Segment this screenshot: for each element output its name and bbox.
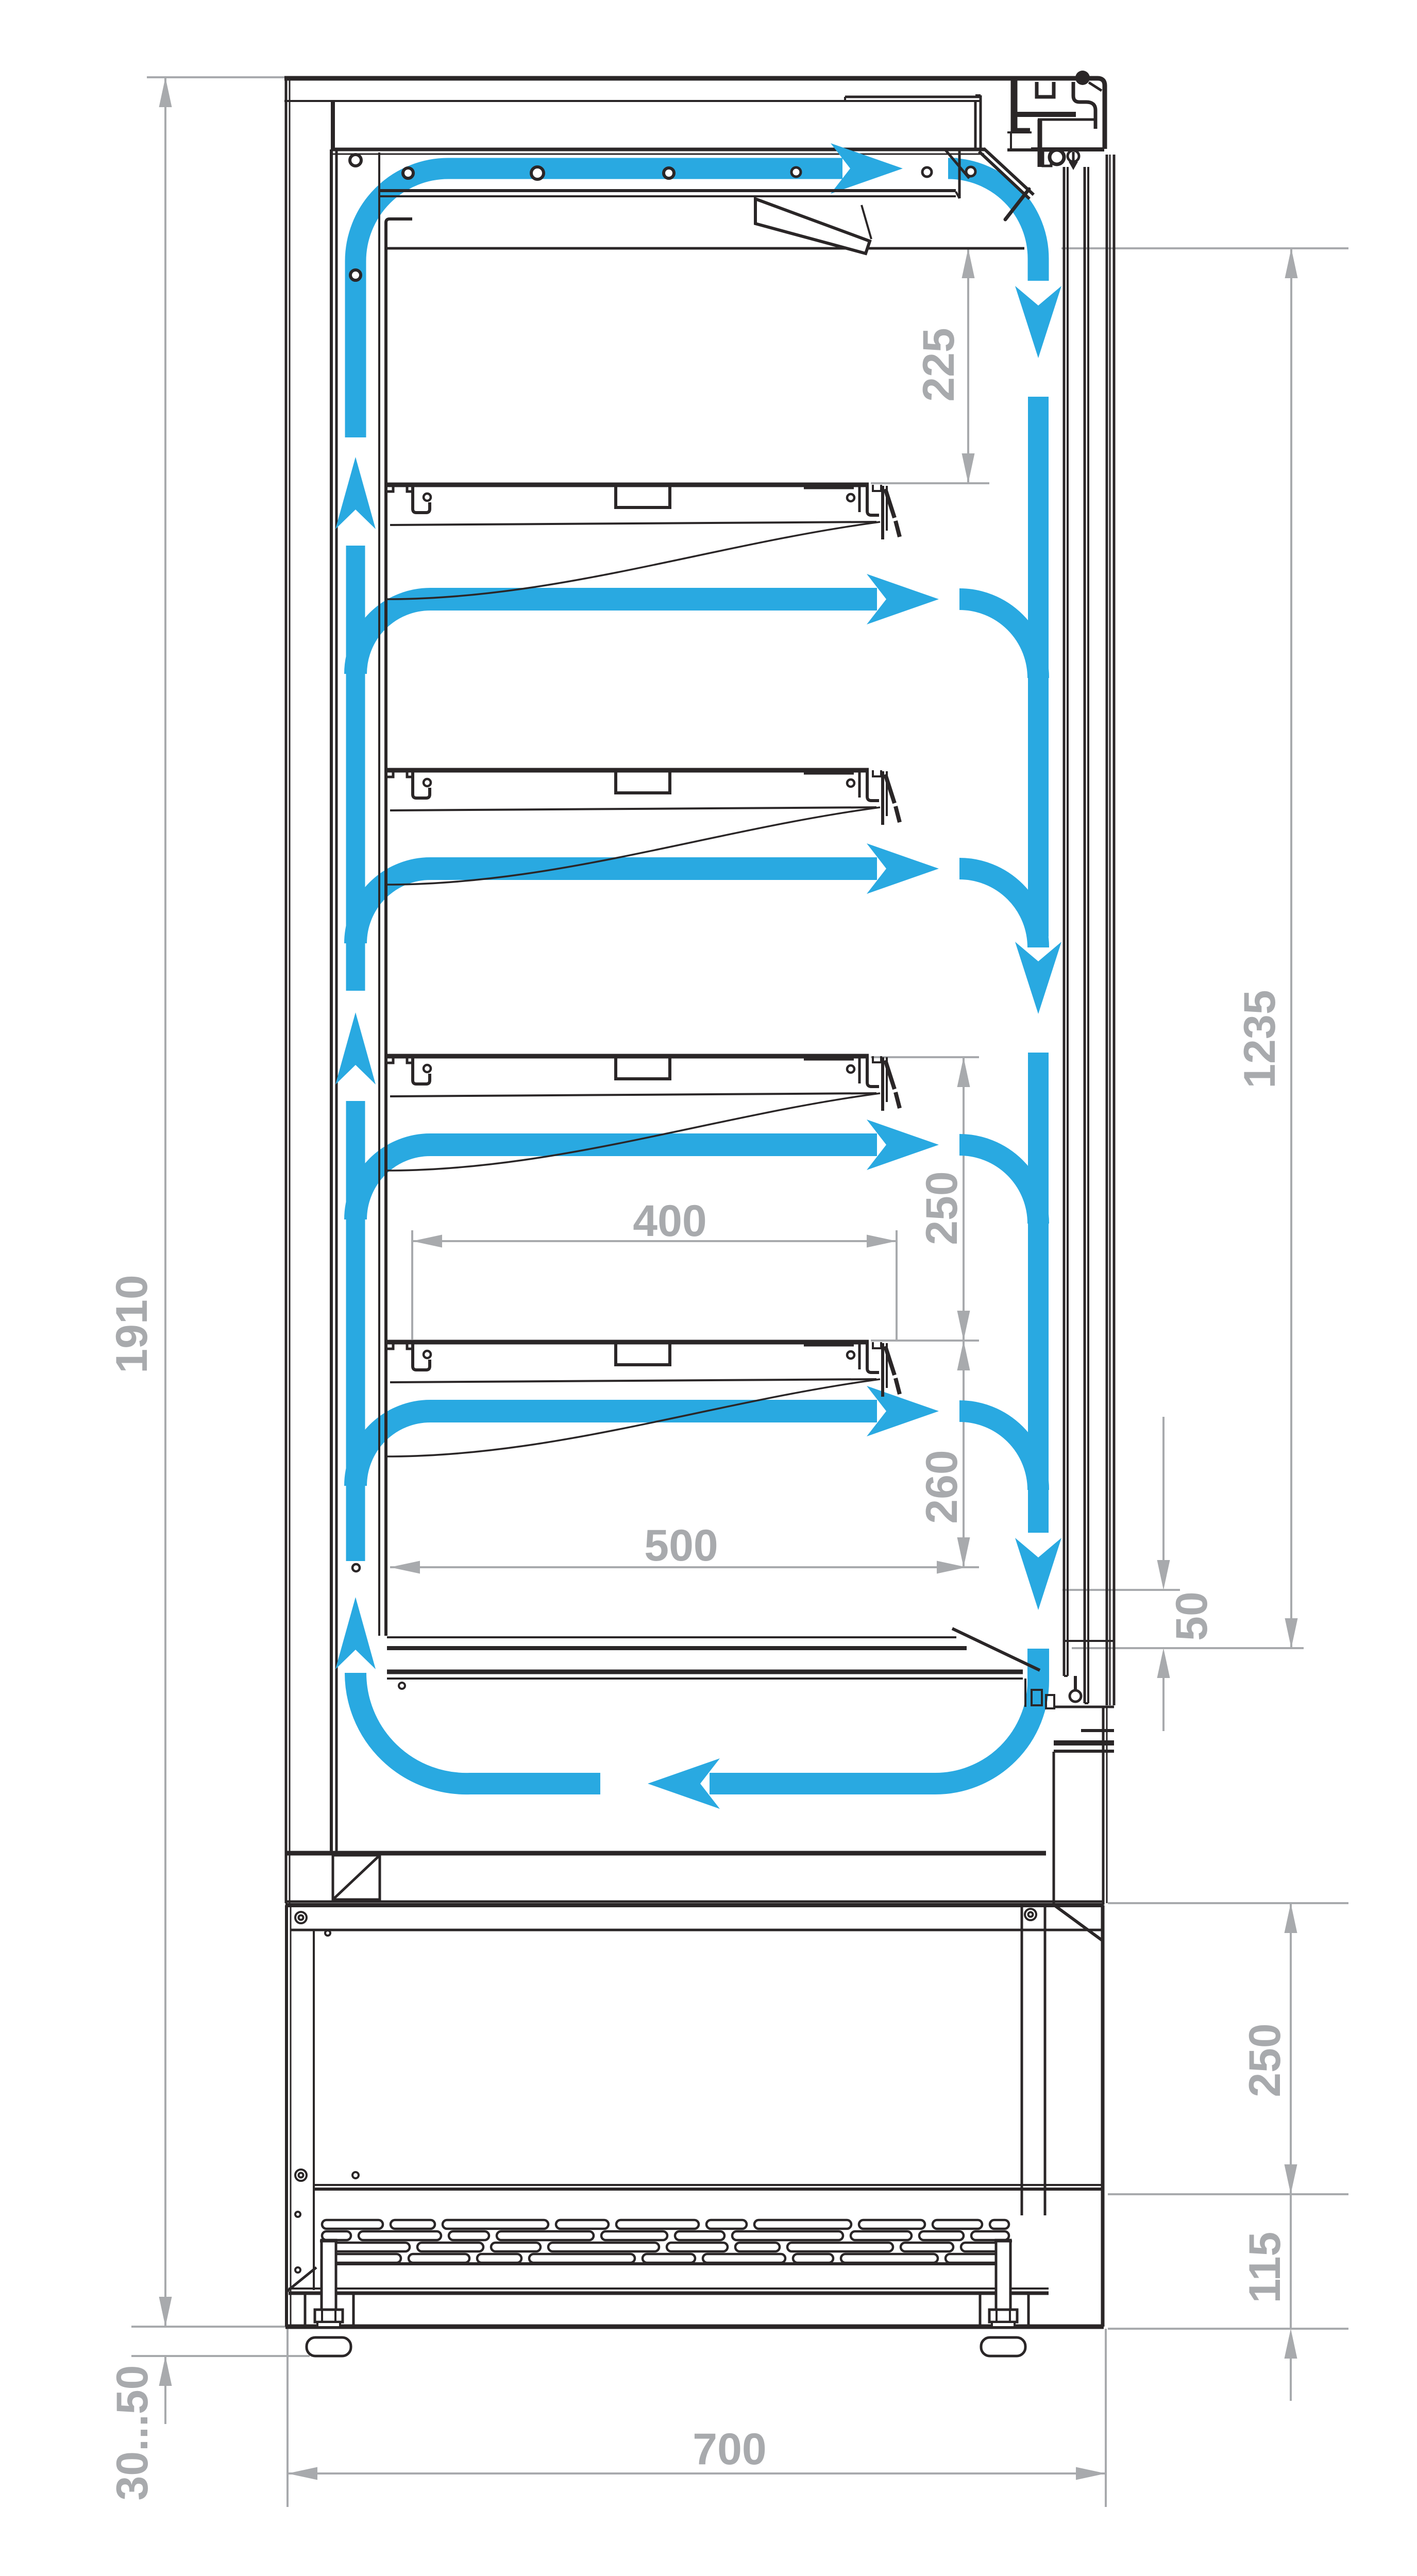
svg-text:250: 250 [917,1171,967,1245]
svg-text:1235: 1235 [1235,990,1285,1088]
svg-text:30...50: 30...50 [108,2365,157,2501]
svg-text:115: 115 [1240,2232,1290,2303]
svg-text:500: 500 [644,1521,718,1570]
svg-text:250: 250 [1240,2023,1290,2097]
svg-text:50: 50 [1167,1591,1217,1641]
svg-text:400: 400 [633,1196,707,1246]
svg-text:700: 700 [693,2425,767,2474]
svg-text:1910: 1910 [107,1275,157,1373]
svg-text:225: 225 [914,328,964,402]
svg-text:260: 260 [917,1450,967,1524]
